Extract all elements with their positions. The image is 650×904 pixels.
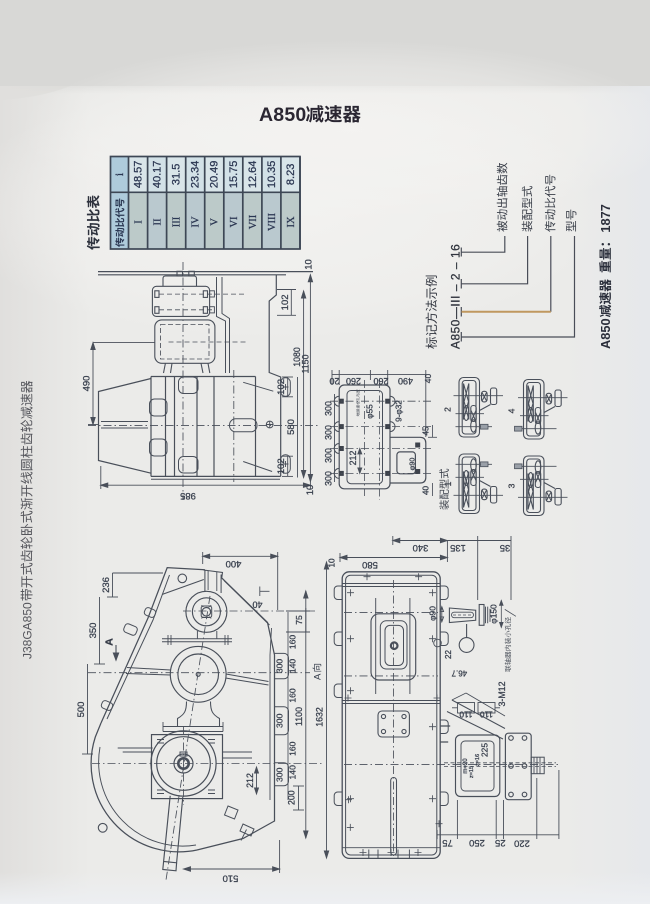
svg-text:48.57: 48.57 (133, 161, 145, 189)
svg-text:160: 160 (288, 688, 298, 703)
svg-text:212: 212 (348, 451, 358, 466)
svg-text:46.7: 46.7 (451, 669, 467, 678)
svg-text:500: 500 (76, 702, 87, 718)
svg-text:300: 300 (323, 401, 333, 416)
svg-text:1632: 1632 (315, 707, 325, 727)
svg-text:140: 140 (288, 765, 298, 780)
svg-text:25: 25 (495, 837, 506, 848)
svg-text:φ150: φ150 (488, 604, 498, 624)
svg-text:V: V (210, 218, 221, 226)
svg-text:1100: 1100 (294, 707, 304, 726)
svg-text:10: 10 (305, 485, 316, 496)
svg-text:160: 160 (288, 635, 298, 650)
svg-text:A850: A850 (259, 104, 306, 126)
svg-text:3-M12: 3-M12 (497, 681, 507, 706)
svg-text:160: 160 (288, 741, 298, 756)
svg-text:10: 10 (328, 558, 337, 568)
svg-text:4: 4 (507, 408, 517, 413)
svg-text:1877: 1877 (598, 204, 613, 232)
svg-text:340: 340 (413, 542, 429, 553)
svg-text:II: II (153, 218, 164, 225)
svg-text:102: 102 (276, 379, 287, 395)
svg-text:8.23: 8.23 (285, 164, 297, 185)
svg-text:IX: IX (286, 216, 297, 227)
svg-text:260: 260 (373, 376, 388, 386)
svg-text:510: 510 (223, 872, 239, 883)
svg-text:260: 260 (346, 376, 361, 386)
svg-text:20: 20 (329, 376, 339, 386)
svg-text:A: A (313, 673, 324, 680)
svg-text:236: 236 (101, 577, 112, 593)
svg-text:3: 3 (507, 483, 517, 488)
svg-text:IV: IV (191, 216, 202, 227)
svg-text:212: 212 (245, 773, 255, 788)
svg-text:102: 102 (276, 458, 287, 474)
svg-text:580: 580 (286, 419, 297, 435)
svg-text:580: 580 (362, 559, 378, 570)
svg-text:200: 200 (286, 790, 296, 805)
svg-text:A: A (104, 638, 116, 646)
svg-text:250: 250 (469, 837, 485, 848)
svg-text:10.35: 10.35 (266, 161, 278, 189)
svg-text:φ90: φ90 (428, 606, 438, 621)
svg-text:135: 135 (450, 542, 466, 553)
svg-text:23.34: 23.34 (190, 161, 202, 189)
svg-text:75: 75 (294, 615, 304, 625)
svg-text:40: 40 (252, 600, 262, 610)
svg-text:φ90: φ90 (408, 458, 417, 471)
svg-text:300: 300 (275, 659, 285, 674)
svg-text:102: 102 (280, 294, 291, 310)
svg-text:22: 22 (444, 650, 453, 659)
svg-text:I: I (134, 220, 145, 224)
svg-text:75: 75 (442, 837, 453, 848)
svg-text:350: 350 (88, 623, 99, 639)
svg-text:985: 985 (180, 490, 196, 501)
svg-text:225: 225 (480, 743, 490, 757)
svg-text:300: 300 (323, 471, 333, 486)
svg-text:15.75: 15.75 (228, 161, 240, 189)
svg-text:VI: VI (229, 216, 240, 228)
svg-text:VIII: VIII (267, 212, 278, 231)
svg-text:20.49: 20.49 (209, 161, 221, 189)
svg-text:40.17: 40.17 (152, 161, 164, 189)
svg-text:10: 10 (304, 259, 315, 270)
svg-text:490: 490 (82, 376, 93, 392)
svg-text:VII: VII (248, 214, 259, 229)
svg-text:35: 35 (500, 542, 511, 553)
svg-text:110: 110 (459, 709, 472, 718)
svg-text:z=15: z=15 (469, 766, 475, 778)
svg-text:12.64: 12.64 (247, 161, 259, 189)
svg-text:φ55: φ55 (365, 404, 374, 419)
svg-text:45: 45 (421, 426, 430, 436)
svg-text:140: 140 (288, 659, 298, 674)
svg-text:9-φ32: 9-φ32 (395, 400, 404, 422)
svg-text:31.5: 31.5 (171, 164, 183, 185)
svg-text:A850—III – 2 – 16: A850—III – 2 – 16 (449, 244, 463, 349)
svg-text:A850: A850 (598, 318, 613, 349)
svg-text:40: 40 (423, 374, 433, 384)
svg-text:300: 300 (275, 713, 285, 728)
svg-text:400: 400 (226, 558, 242, 569)
svg-text:III: III (172, 216, 183, 227)
svg-text:300: 300 (275, 767, 285, 782)
svg-text:300: 300 (323, 425, 333, 440)
svg-text:220: 220 (514, 838, 530, 849)
svg-text:110: 110 (480, 709, 493, 718)
svg-text:300: 300 (323, 448, 333, 463)
svg-text:1150: 1150 (300, 354, 310, 373)
svg-text:490: 490 (398, 376, 413, 386)
svg-text:40: 40 (422, 486, 431, 496)
svg-text:J38GA850: J38GA850 (21, 602, 35, 659)
svg-text:m=20: m=20 (463, 758, 469, 774)
svg-text:2: 2 (443, 407, 453, 412)
